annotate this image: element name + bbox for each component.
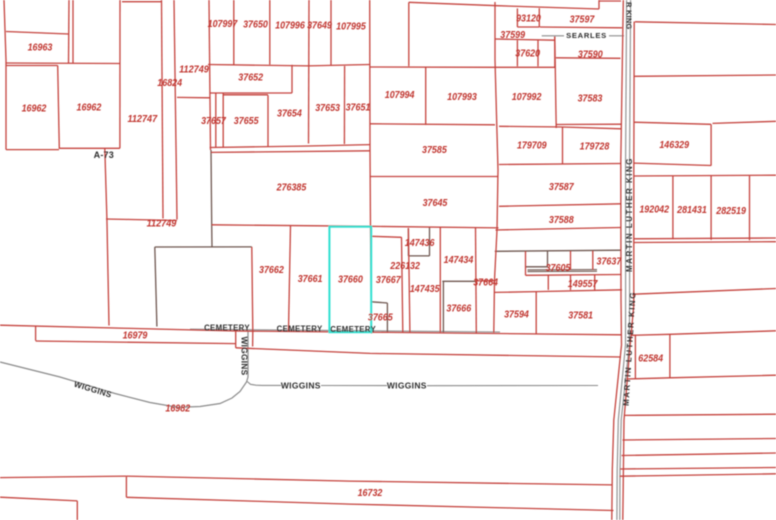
svg-text:281431: 281431 <box>676 205 707 216</box>
svg-text:16979: 16979 <box>123 330 148 341</box>
svg-text:16982: 16982 <box>165 403 190 414</box>
svg-text:37645: 37645 <box>423 198 448 209</box>
svg-text:147436: 147436 <box>405 238 435 249</box>
svg-text:107992: 107992 <box>512 92 542 103</box>
svg-text:37585: 37585 <box>422 145 447 156</box>
svg-text:16963: 16963 <box>28 43 53 54</box>
svg-text:37667: 37667 <box>376 275 402 286</box>
svg-text:37652: 37652 <box>238 73 263 84</box>
svg-text:WIGGINS: WIGGINS <box>387 381 427 391</box>
svg-text:179728: 179728 <box>580 142 610 153</box>
svg-text:37597: 37597 <box>570 15 596 26</box>
svg-text:SEARLES: SEARLES <box>566 31 607 40</box>
svg-text:179709: 179709 <box>517 140 547 151</box>
svg-text:37660: 37660 <box>338 275 363 286</box>
svg-text:37653: 37653 <box>315 103 340 114</box>
svg-text:107996: 107996 <box>275 21 305 32</box>
svg-text:37650: 37650 <box>243 20 268 31</box>
svg-text:37655: 37655 <box>234 116 259 127</box>
svg-text:37637: 37637 <box>597 256 623 267</box>
svg-text:147435: 147435 <box>410 284 440 295</box>
svg-text:37657: 37657 <box>201 116 227 127</box>
svg-text:107993: 107993 <box>447 92 477 103</box>
svg-text:107997: 107997 <box>208 19 239 30</box>
svg-text:192042: 192042 <box>639 204 669 215</box>
svg-text:16962: 16962 <box>22 103 47 114</box>
svg-text:112747: 112747 <box>127 114 158 125</box>
svg-text:147434: 147434 <box>444 255 474 266</box>
svg-text:226132: 226132 <box>389 261 420 272</box>
svg-text:CEMETERY: CEMETERY <box>277 324 323 333</box>
svg-text:37664: 37664 <box>473 278 498 289</box>
svg-text:16824: 16824 <box>157 78 182 89</box>
svg-text:146329: 146329 <box>659 140 689 151</box>
svg-text:37587: 37587 <box>549 182 575 193</box>
svg-text:107994: 107994 <box>385 90 415 101</box>
svg-text:37662: 37662 <box>259 265 284 276</box>
svg-text:37588: 37588 <box>549 215 574 226</box>
svg-text:CEMETERY: CEMETERY <box>330 325 376 334</box>
svg-text:16962: 16962 <box>77 103 102 114</box>
svg-text:149557: 149557 <box>568 279 599 290</box>
svg-text:37590: 37590 <box>578 49 603 60</box>
svg-text:R KING: R KING <box>624 2 633 29</box>
svg-text:37651: 37651 <box>346 102 371 113</box>
svg-text:282519: 282519 <box>715 206 746 217</box>
svg-text:CEMETERY: CEMETERY <box>204 324 250 333</box>
svg-text:37654: 37654 <box>277 108 302 119</box>
svg-text:37594: 37594 <box>504 309 529 320</box>
svg-text:112749: 112749 <box>179 64 209 75</box>
svg-text:37599: 37599 <box>500 30 525 41</box>
svg-text:37649: 37649 <box>307 21 332 32</box>
svg-text:16732: 16732 <box>358 488 383 499</box>
svg-text:62584: 62584 <box>638 354 663 365</box>
svg-text:WIGGINS: WIGGINS <box>239 337 249 376</box>
svg-text:112749: 112749 <box>147 218 177 229</box>
svg-text:A-73: A-73 <box>94 150 114 160</box>
svg-text:37661: 37661 <box>298 274 323 285</box>
svg-text:37605: 37605 <box>546 263 571 274</box>
svg-text:37583: 37583 <box>578 93 603 104</box>
svg-text:37620: 37620 <box>515 49 540 60</box>
svg-text:37666: 37666 <box>446 304 471 315</box>
svg-text:37665: 37665 <box>368 313 393 324</box>
svg-text:107995: 107995 <box>336 22 366 33</box>
svg-text:276385: 276385 <box>276 182 307 193</box>
svg-text:93120: 93120 <box>516 13 541 24</box>
svg-text:WIGGINS: WIGGINS <box>281 380 321 390</box>
svg-text:MARTIN LUTHER KING: MARTIN LUTHER KING <box>625 157 634 272</box>
svg-text:37581: 37581 <box>568 310 593 321</box>
